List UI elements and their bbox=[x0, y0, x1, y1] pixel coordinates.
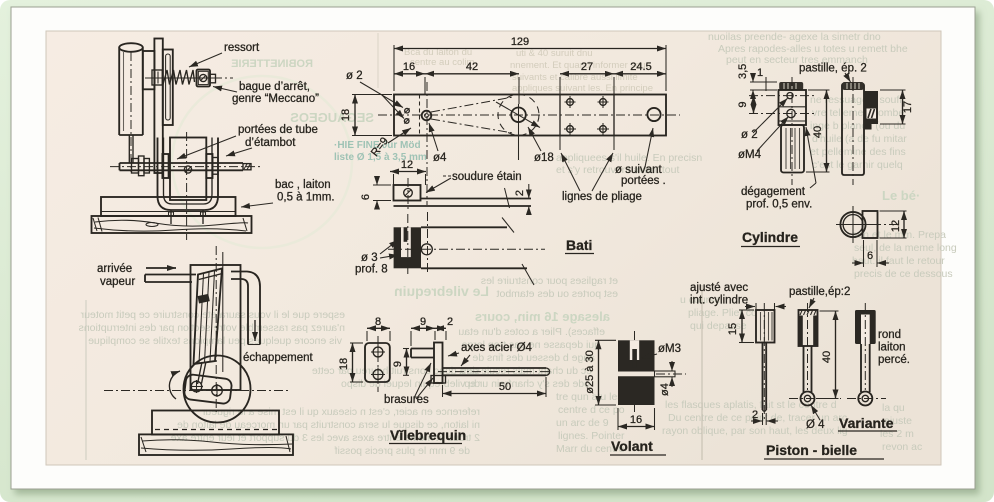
svg-text:2: 2 bbox=[752, 409, 758, 421]
svg-text:18: 18 bbox=[338, 358, 350, 370]
svg-text:Variante: Variante bbox=[839, 415, 894, 431]
svg-text:16: 16 bbox=[403, 61, 415, 73]
svg-text:est portes ou des etambot: est portes ou des etambot bbox=[497, 288, 618, 300]
svg-text:int. cylindre: int. cylindre bbox=[690, 295, 748, 307]
svg-text:vis encore quelques peu lampio: vis encore quelques peu lampions textile… bbox=[88, 335, 342, 347]
svg-text:effaces). Plier a cotes d'un e: effaces). Plier a cotes d'un etau bbox=[458, 326, 605, 338]
svg-text:échappement: échappement bbox=[243, 352, 313, 364]
svg-text:soudure étain: soudure étain bbox=[452, 171, 522, 183]
svg-text:arrivée: arrivée bbox=[97, 263, 132, 275]
svg-text:3,5: 3,5 bbox=[737, 64, 749, 79]
svg-text:Le vilebrequin: Le vilebrequin bbox=[394, 283, 489, 299]
svg-text:ø4: ø4 bbox=[433, 152, 447, 164]
svg-text:24.5: 24.5 bbox=[630, 61, 651, 73]
svg-text:16: 16 bbox=[630, 414, 642, 426]
svg-text:pastille, ép. 2: pastille, ép. 2 bbox=[799, 63, 867, 75]
svg-text:appliques suivant les. En prin: appliques suivant les. En principe bbox=[512, 83, 653, 94]
svg-text:prof. 8: prof. 8 bbox=[355, 264, 388, 276]
svg-text:42: 42 bbox=[466, 61, 478, 73]
svg-text:øM4: øM4 bbox=[738, 149, 762, 161]
svg-text:SEGAUGEOS: SEGAUGEOS bbox=[290, 110, 374, 125]
svg-text:vapeur: vapeur bbox=[100, 276, 135, 288]
svg-text:c'est le garnir quelq: c'est le garnir quelq bbox=[812, 159, 903, 171]
svg-text:bac , laiton: bac , laiton bbox=[275, 179, 331, 191]
svg-text:129: 129 bbox=[511, 36, 529, 48]
svg-text:nuoilas preende- agexe la sime: nuoilas preende- agexe la simetr dno bbox=[708, 31, 881, 43]
svg-text:17: 17 bbox=[902, 101, 914, 113]
svg-text:dégagement: dégagement bbox=[741, 186, 806, 198]
svg-text:2: 2 bbox=[447, 316, 453, 328]
svg-text:precis de ce dessous: precis de ce dessous bbox=[854, 268, 953, 280]
svg-text:portées .: portées . bbox=[621, 175, 666, 187]
svg-text:revon ac: revon ac bbox=[882, 441, 922, 453]
svg-text:un arc de 9: un arc de 9 bbox=[556, 417, 609, 429]
svg-text:Vĭlebrequin: Vĭlebrequin bbox=[390, 427, 466, 443]
svg-text:øM3: øM3 bbox=[658, 343, 681, 355]
svg-text:0,5 à 1mm.: 0,5 à 1mm. bbox=[277, 192, 335, 204]
svg-text:genre “Meccano”: genre “Meccano” bbox=[232, 93, 319, 105]
svg-text:percé.: percé. bbox=[878, 354, 910, 366]
svg-text:axes acier Ø4: axes acier Ø4 bbox=[461, 342, 533, 354]
svg-text:d’étambot: d’étambot bbox=[245, 137, 296, 149]
svg-text:Le bé·: Le bé· bbox=[882, 188, 920, 203]
svg-text:1: 1 bbox=[757, 67, 763, 79]
svg-text:lignes de pliage: lignes de pliage bbox=[562, 191, 642, 203]
svg-text:40: 40 bbox=[812, 126, 824, 138]
svg-text:rond: rond bbox=[878, 329, 901, 341]
svg-text:bague d’arrêt,: bague d’arrêt, bbox=[239, 81, 310, 93]
svg-text:Bati: Bati bbox=[566, 237, 592, 253]
svg-text:du vilebrequin lequel de dispo: du vilebrequin lequel de dispo bbox=[341, 378, 480, 390]
svg-text:15: 15 bbox=[727, 323, 739, 335]
svg-text:prof. 0,5 env.: prof. 0,5 env. bbox=[746, 199, 812, 211]
svg-text:Volant: Volant bbox=[611, 438, 653, 454]
svg-text:Cylindre: Cylindre bbox=[742, 229, 798, 245]
svg-text:6: 6 bbox=[360, 194, 372, 200]
svg-text:ne ressuage n souffl: ne ressuage n souffl bbox=[810, 94, 904, 106]
svg-text:ø25 à 30: ø25 à 30 bbox=[584, 350, 596, 393]
svg-text:la qu: la qu bbox=[882, 402, 905, 414]
svg-text:ode des s'y chanfrein ur ep: ode des s'y chanfrein ur ep bbox=[464, 378, 590, 390]
svg-text:9: 9 bbox=[420, 316, 426, 328]
svg-text:50: 50 bbox=[499, 381, 511, 393]
svg-text:ROBINETTERIE: ROBINETTERIE bbox=[231, 58, 313, 70]
svg-text:et pellemine des fins: et pellemine des fins bbox=[810, 146, 906, 158]
svg-text:alesage 16 min, cours: alesage 16 min, cours bbox=[475, 309, 610, 324]
svg-text:inge b planch (ou du: inge b planch (ou du bbox=[810, 120, 905, 132]
svg-text:Piston - bielle: Piston - bielle bbox=[766, 442, 857, 458]
svg-text:centre d ce po: centre d ce po bbox=[558, 404, 625, 416]
svg-text:uti & 40 suruit dnu: uti & 40 suruit dnu bbox=[516, 48, 593, 59]
svg-text:9: 9 bbox=[737, 101, 749, 107]
svg-text:8: 8 bbox=[375, 316, 381, 328]
svg-text:centre au colim: centre au colim bbox=[410, 57, 475, 68]
svg-text:ressort: ressort bbox=[224, 42, 260, 54]
svg-text:et raglises pour construire le: et raglises pour construire les bbox=[481, 275, 618, 287]
svg-text:de 9 mm le plus precis possif: de 9 mm le plus precis possif bbox=[335, 445, 470, 457]
svg-text:Ø 4: Ø 4 bbox=[806, 419, 825, 431]
svg-text:ø 3: ø 3 bbox=[361, 252, 378, 264]
svg-text:pliage. Plier co: pliage. Plier co bbox=[688, 307, 757, 319]
svg-text:reference en acier, c'est n ci: reference en acier, c'est n ciseaux qu i… bbox=[201, 406, 480, 418]
svg-text:laiton: laiton bbox=[878, 342, 906, 354]
svg-text:12: 12 bbox=[890, 220, 902, 232]
svg-text:ø 2: ø 2 bbox=[346, 70, 363, 82]
svg-text:ø4: ø4 bbox=[659, 383, 671, 396]
svg-text:27: 27 bbox=[581, 61, 593, 73]
svg-text:portées de tube: portées de tube bbox=[238, 124, 318, 136]
svg-text:brasures: brasures bbox=[384, 394, 429, 406]
svg-text:appliquees s'il huile. En prec: appliquees s'il huile. En precisn bbox=[556, 152, 702, 164]
svg-text:ø18: ø18 bbox=[534, 152, 554, 164]
svg-text:18: 18 bbox=[340, 109, 352, 121]
svg-text:2: 2 bbox=[514, 190, 526, 196]
svg-text:40: 40 bbox=[821, 351, 833, 363]
svg-text:ajusté avec: ajusté avec bbox=[690, 282, 748, 294]
svg-text:12: 12 bbox=[401, 159, 413, 171]
svg-text:pastille,ép:2: pastille,ép:2 bbox=[789, 286, 850, 298]
svg-text:6: 6 bbox=[867, 250, 873, 262]
svg-text:9: 9 bbox=[392, 361, 404, 367]
